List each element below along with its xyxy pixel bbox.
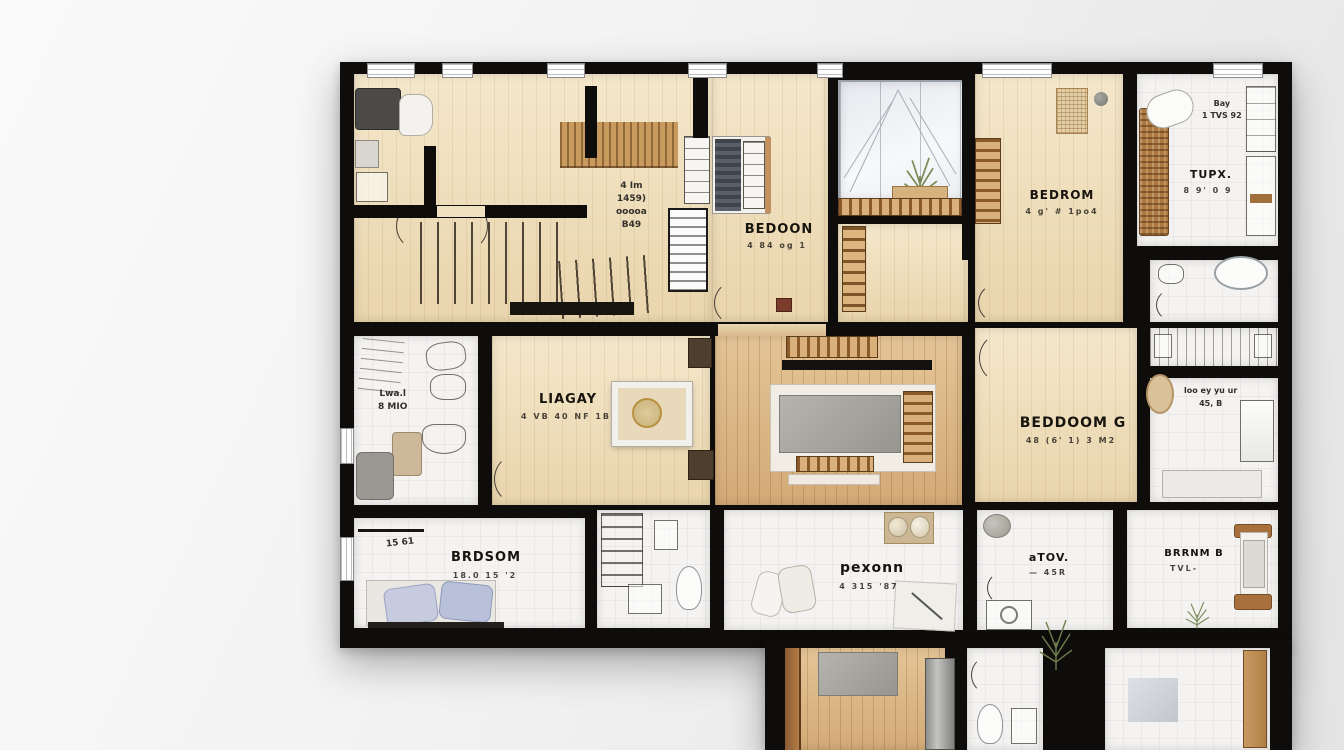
mirror-sketch bbox=[424, 339, 468, 372]
bath-right-note-line: loo ey yu ur bbox=[1184, 384, 1237, 397]
room-laundry-strip bbox=[1150, 328, 1278, 366]
armchair bbox=[399, 94, 433, 136]
window bbox=[547, 63, 585, 78]
cabinet-window bbox=[356, 172, 388, 202]
window bbox=[442, 63, 473, 78]
hall-note-line: 4 Im bbox=[616, 180, 647, 193]
basin-sketch bbox=[422, 424, 466, 454]
room-sub-liagay: 4 VB 40 NF 1B bbox=[521, 412, 611, 421]
bed-rail-wood bbox=[765, 137, 771, 213]
door-arc bbox=[971, 656, 1007, 694]
drawing-board bbox=[893, 580, 957, 631]
wall-stub bbox=[828, 74, 838, 222]
room-label-atov: aTOV. bbox=[1029, 551, 1069, 564]
vanity-bench bbox=[1162, 470, 1262, 498]
pen-line bbox=[911, 592, 943, 620]
room-ext-media bbox=[785, 648, 945, 750]
tupx-note-line: 1 TVS 92 bbox=[1202, 110, 1242, 122]
shell-ball bbox=[888, 517, 908, 537]
wall-band bbox=[830, 216, 968, 224]
plant-icon bbox=[1036, 612, 1076, 672]
window-bay-glazing bbox=[838, 80, 966, 202]
door-panel-tan bbox=[1243, 650, 1267, 748]
bed-shelf bbox=[743, 141, 765, 209]
room-bedroom-b bbox=[1127, 510, 1278, 628]
room-sub-bedroom-top: 4 84 og 1 bbox=[747, 241, 807, 250]
shelf-bar-black bbox=[782, 360, 932, 370]
tray-frame bbox=[612, 382, 692, 446]
bed-mattress-dark bbox=[715, 139, 741, 211]
window bbox=[340, 537, 354, 581]
room-bath-left bbox=[354, 336, 478, 505]
rug-hatched bbox=[1056, 88, 1088, 134]
bed-foot-strip bbox=[368, 622, 504, 628]
door-arc bbox=[494, 454, 542, 504]
ceiling-dot bbox=[1094, 92, 1108, 106]
door-arc bbox=[714, 280, 762, 326]
window bbox=[340, 428, 354, 464]
room-bay-lower bbox=[838, 224, 968, 322]
bathtub-oval bbox=[1214, 256, 1268, 290]
gray-square bbox=[1128, 678, 1178, 722]
window bbox=[1213, 63, 1263, 78]
door-gap bbox=[437, 206, 485, 217]
bath-right-note-line: 45, B bbox=[1184, 397, 1237, 410]
room-sub-bedroom-b: TVL- bbox=[1170, 564, 1198, 573]
drawer-wood-stripe bbox=[1250, 194, 1272, 203]
low-board bbox=[788, 474, 880, 485]
floor-plan-screenshot: 4 Im 1459) ooooa B49 BEDOON 4 84 og 1 bbox=[0, 0, 1344, 750]
washer bbox=[986, 600, 1032, 630]
laundry-box bbox=[1154, 334, 1172, 358]
sink bbox=[1158, 264, 1184, 284]
room-label-tupx: TUPX. bbox=[1190, 168, 1232, 181]
door-arc bbox=[978, 282, 1024, 324]
room-small-bath bbox=[1150, 260, 1278, 322]
bath-left-note-line: Lwa.l bbox=[378, 388, 407, 401]
bath-left-note-line: 8 MIO bbox=[378, 401, 407, 414]
bed-frame bbox=[712, 136, 770, 214]
tupx-note: Bay 1 TVS 92 bbox=[1202, 98, 1242, 122]
tupx-note-line: Bay bbox=[1202, 98, 1242, 110]
toilet bbox=[977, 704, 1003, 744]
room-sub-beddoom-g: 48 (6' 1) 3 M2 bbox=[1026, 436, 1116, 445]
shelf-unit bbox=[684, 136, 710, 204]
wall-stub bbox=[585, 86, 597, 158]
room-label-brdsom: BRDSOM bbox=[451, 550, 521, 565]
bench-cushion bbox=[1243, 540, 1265, 588]
dimension-line bbox=[358, 529, 424, 532]
hall-note-line: 1459) bbox=[616, 193, 647, 206]
bed-pillow bbox=[438, 580, 494, 623]
bench-arm-wood bbox=[1234, 594, 1272, 610]
slat-bench bbox=[975, 138, 1001, 224]
room-label-bedroom-top: BEDOON bbox=[745, 222, 814, 237]
desk-dark bbox=[355, 88, 401, 130]
wall-stub bbox=[962, 74, 975, 260]
staircase-straight bbox=[420, 222, 560, 304]
shelf-shells bbox=[884, 512, 934, 544]
bench-slatted bbox=[796, 456, 874, 472]
window bbox=[817, 63, 843, 78]
hall-note: 4 Im 1459) ooooa B49 bbox=[616, 180, 647, 232]
bed-pillow bbox=[383, 583, 440, 628]
room-sub-brdsom: 18.0 15 '2 bbox=[453, 571, 517, 580]
bath-right-note: loo ey yu ur 45, B bbox=[1184, 384, 1237, 410]
toilet bbox=[676, 566, 702, 610]
room-label-bedroom-b: BRRNM B bbox=[1164, 548, 1223, 559]
window bbox=[688, 63, 727, 78]
room-sub-tupx: 8 9' 0 9 bbox=[1183, 186, 1232, 195]
door-frame-wood bbox=[785, 648, 801, 750]
staircase-striped bbox=[668, 208, 708, 292]
mirror-sketch bbox=[430, 374, 466, 400]
window-sill-wood bbox=[838, 198, 962, 216]
room-hall-top-left bbox=[354, 74, 712, 322]
shower-panel bbox=[1240, 400, 1274, 462]
window bbox=[982, 63, 1052, 78]
floor-pillow bbox=[776, 563, 817, 614]
cabinet-dark bbox=[688, 338, 712, 368]
shell-ball bbox=[910, 516, 930, 538]
washer-drum bbox=[1000, 606, 1018, 624]
sink-cabinet bbox=[1011, 708, 1037, 744]
cabinet-grid bbox=[1246, 86, 1276, 152]
room-ext-hall bbox=[967, 648, 1043, 750]
room-ladder-bath bbox=[597, 510, 710, 628]
ladder-sketch bbox=[601, 513, 643, 587]
door-arc bbox=[979, 332, 1031, 384]
ornament-circle bbox=[632, 398, 662, 428]
stool-tan bbox=[392, 432, 422, 476]
room-label-pexonn: pexonn bbox=[840, 560, 904, 576]
room-living bbox=[715, 336, 962, 505]
stone-gray bbox=[983, 514, 1011, 538]
room-label-bedroom-right: BEDROM bbox=[1030, 188, 1095, 202]
room-label-beddoom-g: BEDDOOM G bbox=[1020, 415, 1127, 431]
room-ext-right bbox=[1105, 648, 1270, 750]
row-opening bbox=[718, 324, 826, 336]
wall-vent bbox=[776, 298, 792, 312]
room-sub-atov: — 45R bbox=[1029, 568, 1067, 577]
wall-stub bbox=[1123, 74, 1137, 322]
sofa-side-slats bbox=[903, 391, 933, 463]
sofa-gray-panel bbox=[779, 395, 901, 453]
laundry-box bbox=[1254, 334, 1272, 358]
window bbox=[367, 63, 415, 78]
room-label-liagay: LIAGAY bbox=[539, 392, 597, 407]
plant-icon bbox=[1179, 596, 1215, 630]
couch-gray bbox=[356, 452, 394, 500]
ladder-shelf bbox=[842, 226, 866, 312]
shower-tray bbox=[628, 584, 662, 614]
bath-left-note: Lwa.l 8 MIO bbox=[378, 388, 407, 414]
hall-note-line: B49 bbox=[616, 219, 647, 232]
closet-hatched bbox=[560, 122, 678, 168]
wall-stub bbox=[693, 74, 708, 138]
hall-note-line: ooooa bbox=[616, 206, 647, 219]
cabinet-small bbox=[355, 140, 379, 168]
sink bbox=[654, 520, 678, 550]
fridge bbox=[925, 658, 955, 750]
stair-base-bar bbox=[510, 302, 634, 315]
shelf-slatted bbox=[786, 336, 878, 358]
room-sub-pexonn: 4 315 '87 bbox=[839, 582, 898, 591]
room-sub-bedroom-right: 4 g' # 1po4 bbox=[1025, 207, 1098, 216]
room-bedroom-top bbox=[712, 74, 828, 322]
wall-stub bbox=[424, 146, 436, 212]
tv-panel bbox=[818, 652, 898, 696]
cabinet-dark bbox=[688, 450, 714, 480]
towel-roll bbox=[1146, 374, 1174, 414]
door-arc bbox=[1156, 288, 1194, 322]
